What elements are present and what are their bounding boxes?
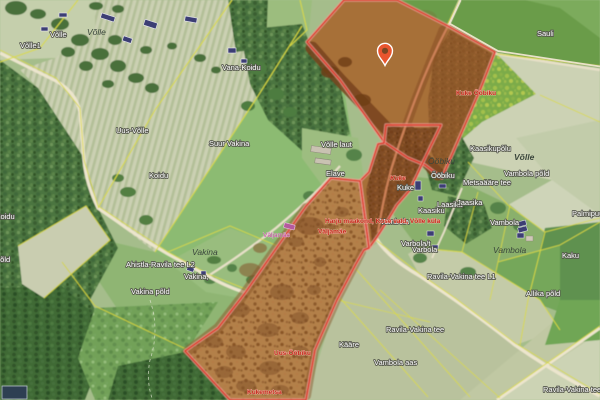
svg-text:Ravila-Vakina tee: Ravila-Vakina tee [386,325,444,334]
svg-text:Ravila-Vakina tee L2: Ravila-Vakina tee L2 [543,385,600,394]
svg-text:Jaasika: Jaasika [457,198,483,207]
svg-text:Elave: Elave [326,169,345,178]
svg-text:Võlle1: Võlle1 [20,41,41,50]
svg-text:Vakina põld: Vakina põld [131,287,170,296]
svg-text:Suur Vakina: Suur Vakina [209,139,250,148]
svg-text:Ööbiku: Ööbiku [428,156,455,166]
svg-text:Võlle: Võlle [87,27,106,37]
svg-text:Palmipuu: Palmipuu [572,209,600,218]
svg-text:Kuke: Kuke [390,175,406,182]
svg-text:Ahistla-Ravila tee L2: Ahistla-Ravila tee L2 [126,260,195,269]
svg-text:Metsaääre tee: Metsaääre tee [463,178,511,187]
svg-text:Koidu: Koidu [149,171,168,180]
svg-text:Kukemetsa: Kukemetsa [247,389,282,396]
svg-text:Uus-Ööbiku: Uus-Ööbiku [274,348,311,357]
svg-text:Võlle laut: Võlle laut [321,140,353,149]
svg-text:Sauli: Sauli [537,29,554,38]
svg-text:Vambola põld: Vambola põld [504,169,549,178]
svg-text:Uus-Võlle: Uus-Võlle [116,126,149,135]
svg-text:Kaku: Kaku [562,251,579,260]
svg-text:Vambola: Vambola [493,245,527,255]
svg-text:Võlle: Võlle [50,30,67,39]
svg-text:Vambola: Vambola [490,218,520,227]
svg-text:Kääre: Kääre [339,340,359,349]
svg-text:põld: põld [0,255,10,264]
svg-text:Vambola aas: Vambola aas [374,358,417,367]
svg-text:-Koidu: -Koidu [0,212,15,221]
svg-text:Väljamäe: Väljamäe [263,232,290,239]
svg-text:Harju maakond, Kose vald, Võll: Harju maakond, Kose vald, Võlle küla [325,218,441,225]
svg-text:Vakina,: Vakina, [184,272,208,281]
svg-text:Kuke Ööbiku: Kuke Ööbiku [456,88,496,97]
svg-text:Ravila-Vakina tee L1: Ravila-Vakina tee L1 [427,272,496,281]
svg-text:Vakina: Vakina [192,247,218,257]
svg-text:Väljamäe: Väljamäe [318,229,347,236]
svg-text:Ööbiku: Ööbiku [431,171,455,180]
svg-text:Varbola: Varbola [412,245,438,254]
svg-text:Vana-Koidu: Vana-Koidu [222,63,261,72]
svg-text:Allika põld: Allika põld [526,289,560,298]
svg-text:Kuke: Kuke [397,183,414,192]
svg-text:Võlle: Võlle [514,152,535,162]
svg-text:Kaasikupõlu: Kaasikupõlu [470,144,511,153]
